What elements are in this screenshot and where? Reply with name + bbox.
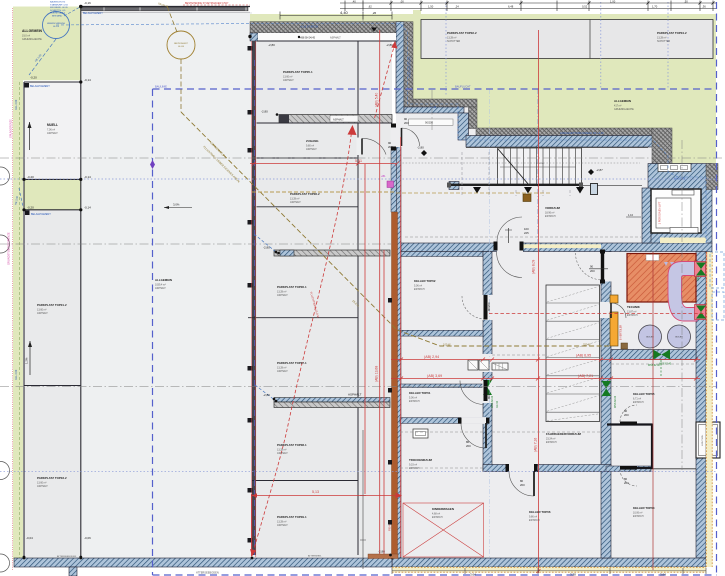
svg-text:ATTERSEEBODEN: ATTERSEEBODEN <box>196 571 219 575</box>
svg-text:(AB) 7,21: (AB) 7,21 <box>578 374 593 378</box>
svg-text:SCHOTTER: SCHOTTER <box>657 40 670 43</box>
svg-text:,62: ,62 <box>368 5 372 9</box>
svg-text:-0,20: -0,20 <box>27 175 34 179</box>
svg-text:MUELL: MUELL <box>47 123 58 127</box>
svg-text:WSS 62.40: WSS 62.40 <box>614 395 617 408</box>
svg-text:FATZBONGERT: FATZBONGERT <box>174 42 189 45</box>
svg-text:ASPHALT: ASPHALT <box>290 201 301 204</box>
svg-text:BESTAND: BESTAND <box>52 15 63 18</box>
svg-text:BELAGPIGMENT: BELAGPIGMENT <box>31 213 51 216</box>
svg-text:ASPHALT: ASPHALT <box>277 294 288 297</box>
svg-text:ESTRICH: ESTRICH <box>432 516 443 519</box>
svg-text:HZG: HZG <box>697 276 700 281</box>
svg-text:3,0%: 3,0% <box>173 203 180 207</box>
svg-text:STAMMUMF. 0,94: STAMMUMF. 0,94 <box>50 3 68 6</box>
svg-text:+B8 SH 04,45: +B8 SH 04,45 <box>300 37 316 40</box>
svg-text:200: 200 <box>590 269 595 273</box>
svg-text:,36: ,36 <box>702 5 706 9</box>
svg-text:ESTRICH: ESTRICH <box>409 467 420 470</box>
svg-text:ANSCHUETTUNG: ANSCHUETTUNG <box>408 56 412 78</box>
svg-text:-0,14: -0,14 <box>84 78 91 82</box>
svg-text:ALLGEMEIN: ALLGEMEIN <box>614 99 631 103</box>
svg-text:ESTRICH: ESTRICH <box>545 215 556 218</box>
svg-text:200: 200 <box>388 145 393 149</box>
svg-text:200: 200 <box>520 483 525 487</box>
svg-text:-0,16: -0,16 <box>84 1 91 5</box>
svg-text:WSS 62.40: WSS 62.40 <box>491 395 494 408</box>
svg-text:(AB) 13,68: (AB) 13,68 <box>375 366 379 382</box>
svg-text:-0,20: -0,20 <box>27 206 34 210</box>
svg-text:KELLER TOP02: KELLER TOP02 <box>414 279 436 283</box>
svg-text:-0,06: -0,06 <box>84 536 91 540</box>
svg-text:(AB) 6,95: (AB) 6,95 <box>576 354 591 358</box>
svg-text:(AB) 8,09: (AB) 8,09 <box>532 260 536 274</box>
svg-text:PARKPLATZ TOP06-2: PARKPLATZ TOP06-2 <box>290 192 320 196</box>
svg-text:-2,80: -2,80 <box>417 146 424 150</box>
svg-text:ASPHALT: ASPHALT <box>283 79 294 82</box>
svg-text:(AB) 2,94: (AB) 2,94 <box>424 355 439 359</box>
svg-text:KELLER TOP04: KELLER TOP04 <box>633 506 655 510</box>
svg-text:ESTRICH: ESTRICH <box>633 515 644 518</box>
svg-text:ASPHALT: ASPHALT <box>306 148 317 151</box>
svg-text:TECHNIK: TECHNIK <box>627 305 641 309</box>
svg-text:-2,80: -2,80 <box>378 550 385 554</box>
svg-text:-0,14: -0,14 <box>84 175 91 179</box>
svg-text:PARKPLATZ TOP03-2: PARKPLATZ TOP03-2 <box>37 476 67 480</box>
svg-text:PARKPLATZ TOP06-1: PARKPLATZ TOP06-1 <box>277 285 307 289</box>
svg-text:4,40: 4,40 <box>340 10 349 15</box>
svg-text:-2,80: -2,80 <box>261 110 268 114</box>
svg-text:FAHRRAEDERVORRAUM: FAHRRAEDERVORRAUM <box>546 432 582 436</box>
svg-text:ASPHALT: ASPHALT <box>348 393 362 397</box>
svg-text:ASPHALT: ASPHALT <box>37 485 48 488</box>
svg-text:1,70: 1,70 <box>652 5 658 9</box>
svg-text:PARKPLATZ TOP02-2: PARKPLATZ TOP02-2 <box>447 31 477 35</box>
svg-text:,24: ,24 <box>455 5 459 9</box>
svg-text:-2,87: -2,87 <box>596 168 603 172</box>
svg-text:100 W: 100 W <box>443 343 451 347</box>
svg-text:80/200: 80/200 <box>487 302 491 311</box>
svg-text:1 PERSONEN LIFT: 1 PERSONEN LIFT <box>658 201 662 224</box>
svg-text:ASPHALT: ASPHALT <box>277 370 288 373</box>
svg-text:BAUMSCHUTZ: BAUMSCHUTZ <box>50 1 66 4</box>
svg-text:ESTRICH: ESTRICH <box>633 401 644 404</box>
svg-text:-2,80: -2,80 <box>263 246 270 250</box>
svg-text:GRUENFLAECHE: GRUENFLAECHE <box>22 38 42 41</box>
svg-text:ASPHALT: ASPHALT <box>333 119 344 122</box>
svg-text:ESTRICH: ESTRICH <box>409 400 420 403</box>
svg-text:ALLGEMEIN: ALLGEMEIN <box>155 278 172 282</box>
svg-text:+0,16 STUETZM: +0,16 STUETZM <box>300 26 318 29</box>
svg-text:1,2%: 1,2% <box>25 357 29 364</box>
svg-text:KELLER TOP05: KELLER TOP05 <box>633 392 655 396</box>
svg-text:1,10: 1,10 <box>628 213 634 217</box>
svg-text:PARKPLATZ TOP01-2: PARKPLATZ TOP01-2 <box>37 303 67 307</box>
svg-text:PARKPLATZ TOP08-1: PARKPLATZ TOP08-1 <box>277 443 307 447</box>
svg-text:ATTERSEEBODEN: ATTERSEEBODEN <box>57 555 77 558</box>
svg-text:,50: ,50 <box>684 0 688 4</box>
svg-text:,40: ,40 <box>352 0 356 4</box>
svg-text:BAULINIE: BAULINIE <box>155 85 167 89</box>
svg-text:-2,80: -2,80 <box>263 393 270 397</box>
svg-text:225: 225 <box>524 231 529 235</box>
svg-text:80/200: 80/200 <box>487 390 491 399</box>
svg-text:06 056: 06 056 <box>53 26 59 28</box>
svg-text:PARKPLATZ TOP04-2: PARKPLATZ TOP04-2 <box>657 31 687 35</box>
svg-text:PARKPLATZ TOP09-1: PARKPLATZ TOP09-1 <box>277 515 307 519</box>
svg-text:6,48: 6,48 <box>508 5 514 9</box>
svg-text:SCHNITTH. 4,5: SCHNITTH. 4,5 <box>50 10 66 12</box>
svg-text:RGL 2,90: RGL 2,90 <box>15 99 18 110</box>
svg-text:ASPHALT: ASPHALT <box>277 524 288 527</box>
svg-text:+B1: +B1 <box>381 175 386 178</box>
svg-text:17 STG: 17 STG <box>536 163 544 165</box>
svg-text:LICHTSCH.: LICHTSCH. <box>702 434 704 446</box>
svg-text:RG 40: RG 40 <box>496 400 499 408</box>
svg-text:3,38: 3,38 <box>570 573 576 576</box>
svg-text:(AB) 7,16: (AB) 7,16 <box>534 438 538 452</box>
svg-text:ESTRICH: ESTRICH <box>546 441 557 444</box>
svg-text:TROCKENRAUM: TROCKENRAUM <box>409 458 433 462</box>
svg-text:BESTEHENDE STUETZMAUER 0,507: BESTEHENDE STUETZMAUER 0,507 <box>185 2 229 5</box>
svg-text:-0,14: -0,14 <box>84 206 91 210</box>
svg-text:(AB) 3,69: (AB) 3,69 <box>427 374 442 378</box>
svg-text:,00: ,00 <box>400 0 404 4</box>
svg-text:E-VERTEILER: E-VERTEILER <box>621 325 623 340</box>
svg-text:ZUGANG: ZUGANG <box>306 139 319 143</box>
svg-text:200: 200 <box>466 444 471 448</box>
svg-text:KELLER TOP01: KELLER TOP01 <box>409 391 431 395</box>
svg-text:ATTERSEEB.: ATTERSEEB. <box>308 555 322 558</box>
svg-text:ASPHALT: ASPHALT <box>47 132 58 135</box>
svg-text:90: 90 <box>590 265 594 269</box>
svg-text:-2,80: -2,80 <box>268 43 275 47</box>
svg-text:ASPHALT: ASPHALT <box>330 37 341 40</box>
svg-text:WSS 62 40: WSS 62 40 <box>648 365 660 367</box>
svg-text:-0,04: -0,04 <box>26 536 33 540</box>
svg-text:1,50: 1,50 <box>428 5 434 9</box>
svg-text:3,64: 3,64 <box>470 573 476 576</box>
svg-text:KELLER TOP06: KELLER TOP06 <box>529 510 551 514</box>
svg-text:06 046: 06 046 <box>178 46 184 48</box>
svg-text:3,64: 3,64 <box>660 573 666 576</box>
svg-text:ASPHALT: ASPHALT <box>37 312 48 315</box>
svg-text:F90 M: F90 M <box>387 524 391 531</box>
svg-text:ANSCHUETTUNG NIVEAU OK +0,16: ANSCHUETTUNG NIVEAU OK +0,16 <box>560 131 604 135</box>
svg-text:ALLGEMEIN: ALLGEMEIN <box>22 29 43 33</box>
svg-text:SCHOTTER: SCHOTTER <box>447 40 460 43</box>
svg-text:-0,20: -0,20 <box>30 76 37 80</box>
svg-text:ASPHALT: ASPHALT <box>277 452 288 455</box>
svg-text:PARKPLATZ TOP07-1: PARKPLATZ TOP07-1 <box>277 361 307 365</box>
svg-text:0,52: 0,52 <box>582 5 588 9</box>
svg-text:200: 200 <box>404 121 409 125</box>
svg-text:200: 200 <box>624 413 629 417</box>
svg-text:GRUNDSTUECKSGRENZE: GRUNDSTUECKSGRENZE <box>7 232 11 265</box>
svg-text:ESTRICH: ESTRICH <box>414 288 425 291</box>
svg-text:ESTRICH: ESTRICH <box>627 314 638 317</box>
svg-text:5,13: 5,13 <box>312 490 319 494</box>
svg-text:GRUNDGRENZE: GRUNDGRENZE <box>10 119 13 138</box>
svg-text:RGL 2,90: RGL 2,90 <box>15 369 18 380</box>
svg-text:KRONEND. 06 05: KRONEND. 06 05 <box>50 7 68 9</box>
svg-text:5,51: 5,51 <box>355 159 362 163</box>
svg-text:ASPHALT: ASPHALT <box>155 287 166 290</box>
svg-text:200: 200 <box>624 481 629 485</box>
svg-text:,26: ,26 <box>372 11 377 15</box>
svg-text:+0,16: +0,16 <box>430 106 437 109</box>
svg-text:VORRAUM: VORRAUM <box>545 206 561 210</box>
svg-text:KINDERWAGEN: KINDERWAGEN <box>432 507 454 511</box>
svg-text:BELAGPIGMENT: BELAGPIGMENT <box>30 85 50 88</box>
svg-text:1,00: 1,00 <box>610 0 616 4</box>
svg-text:PARKPLATZ TOP05-1: PARKPLATZ TOP05-1 <box>283 70 313 74</box>
svg-text:BAUFLUCHT: BAUFLUCHT <box>455 85 471 89</box>
svg-text:UEBERSCHIRMUNG: UEBERSCHIRMUNG <box>47 23 66 25</box>
svg-text:700 W: 700 W <box>583 343 591 347</box>
svg-text:ESTRICH: ESTRICH <box>529 519 540 522</box>
svg-text:BELAGPIGMENT: BELAGPIGMENT <box>83 12 103 15</box>
svg-text:GRUENFLAECHE: GRUENFLAECHE <box>614 108 634 111</box>
svg-text:HOEHE CA 8,0: HOEHE CA 8,0 <box>50 12 66 15</box>
